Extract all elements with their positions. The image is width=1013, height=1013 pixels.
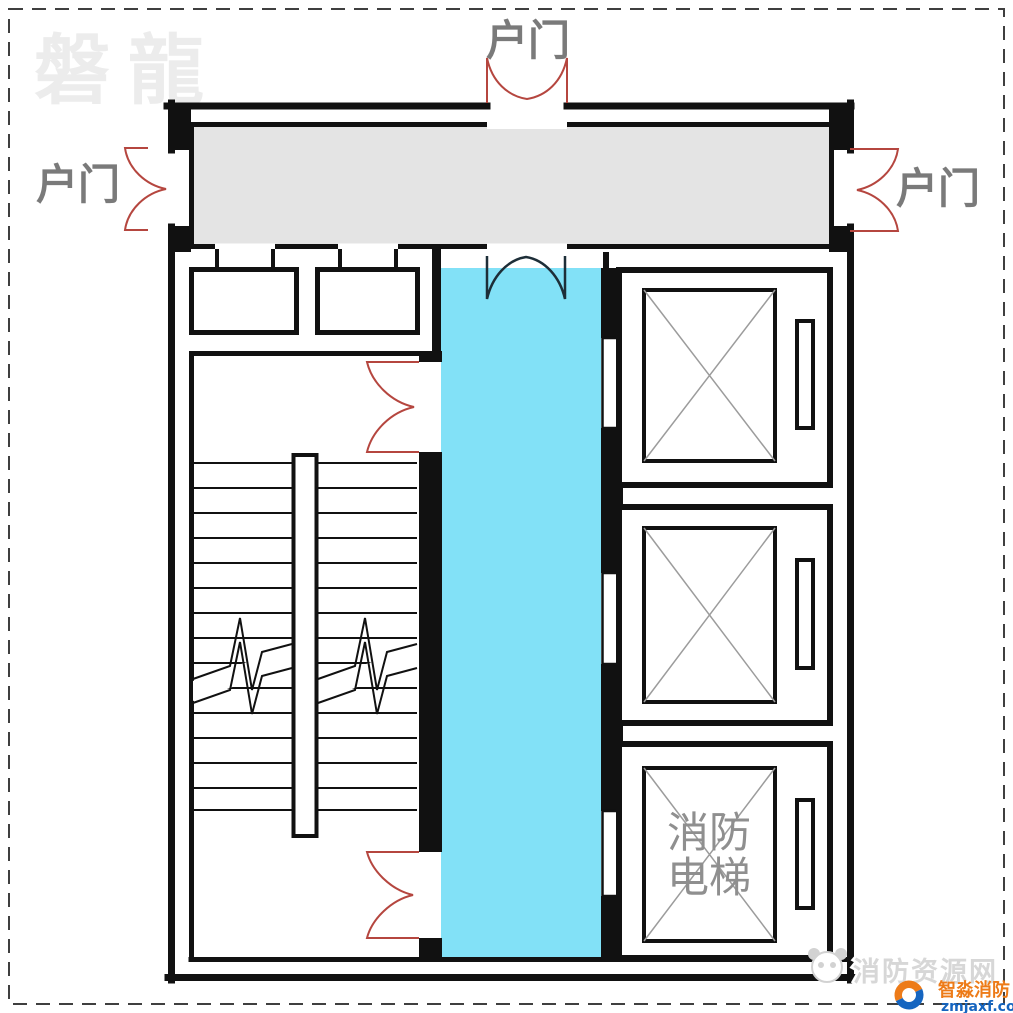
service-shaft-box-2	[318, 270, 418, 333]
stair-room	[189, 351, 441, 959]
door-swing-stair-top	[367, 362, 419, 452]
door-label-left: 户门	[36, 160, 120, 209]
fire-elevator-label: 消防 电梯	[667, 808, 751, 902]
service-shaft-box-1	[192, 270, 297, 333]
door-label-right: 户门	[896, 164, 980, 213]
service-shaft-boxes	[192, 249, 418, 333]
counterweight-3	[797, 800, 813, 908]
fire-elevator-label-line2: 电梯	[667, 853, 751, 902]
door-swing-left	[125, 148, 166, 230]
counterweight-1	[797, 321, 813, 428]
vendor-logo: 智淼消防 zmjaxf.com	[890, 976, 1013, 1013]
door-swing-stair-bottom	[367, 852, 419, 938]
door-swing-right	[850, 149, 898, 231]
floor-plan-page: 磐龍	[0, 0, 1013, 1013]
brand-watermark: 磐龍	[34, 26, 222, 115]
counterweight-2	[797, 560, 813, 668]
door-label-top: 户门	[486, 16, 570, 65]
stair-divider	[294, 455, 317, 836]
lobby-corridor	[441, 268, 601, 957]
corridor-top	[192, 125, 832, 247]
floor-plan-svg: 磐龍	[0, 0, 1013, 1013]
fire-elevator-label-line1: 消防	[667, 808, 751, 857]
vendor-logo-url: zmjaxf.com	[941, 999, 1013, 1013]
vendor-logo-name: 智淼消防	[938, 979, 1010, 1001]
